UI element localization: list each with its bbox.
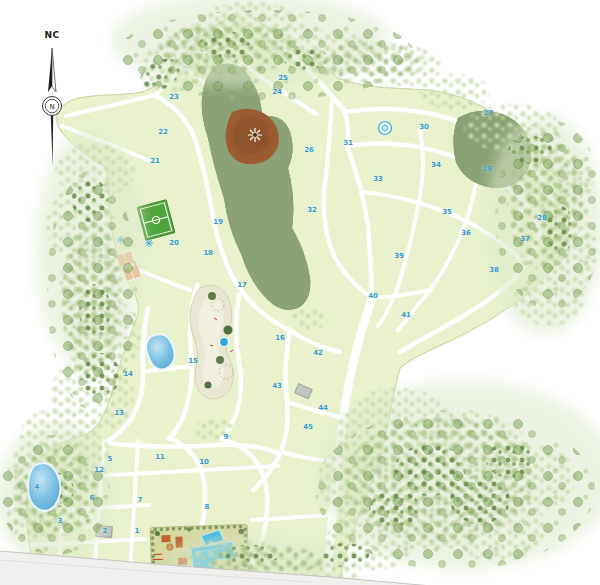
master-plan-map bbox=[0, 0, 600, 585]
compass-label: NC bbox=[24, 30, 80, 40]
site-plan-board: NC N 12345678910111213141516171819202122… bbox=[0, 0, 600, 585]
park-fountain bbox=[220, 338, 229, 347]
pond-circle bbox=[379, 122, 392, 135]
central-park bbox=[190, 285, 234, 399]
compass-cardinal: N bbox=[49, 103, 54, 111]
lookout-star-icon bbox=[248, 128, 262, 142]
lake bbox=[28, 463, 61, 511]
compass: NC N bbox=[24, 30, 80, 194]
north-arrow-icon: N bbox=[24, 40, 80, 190]
